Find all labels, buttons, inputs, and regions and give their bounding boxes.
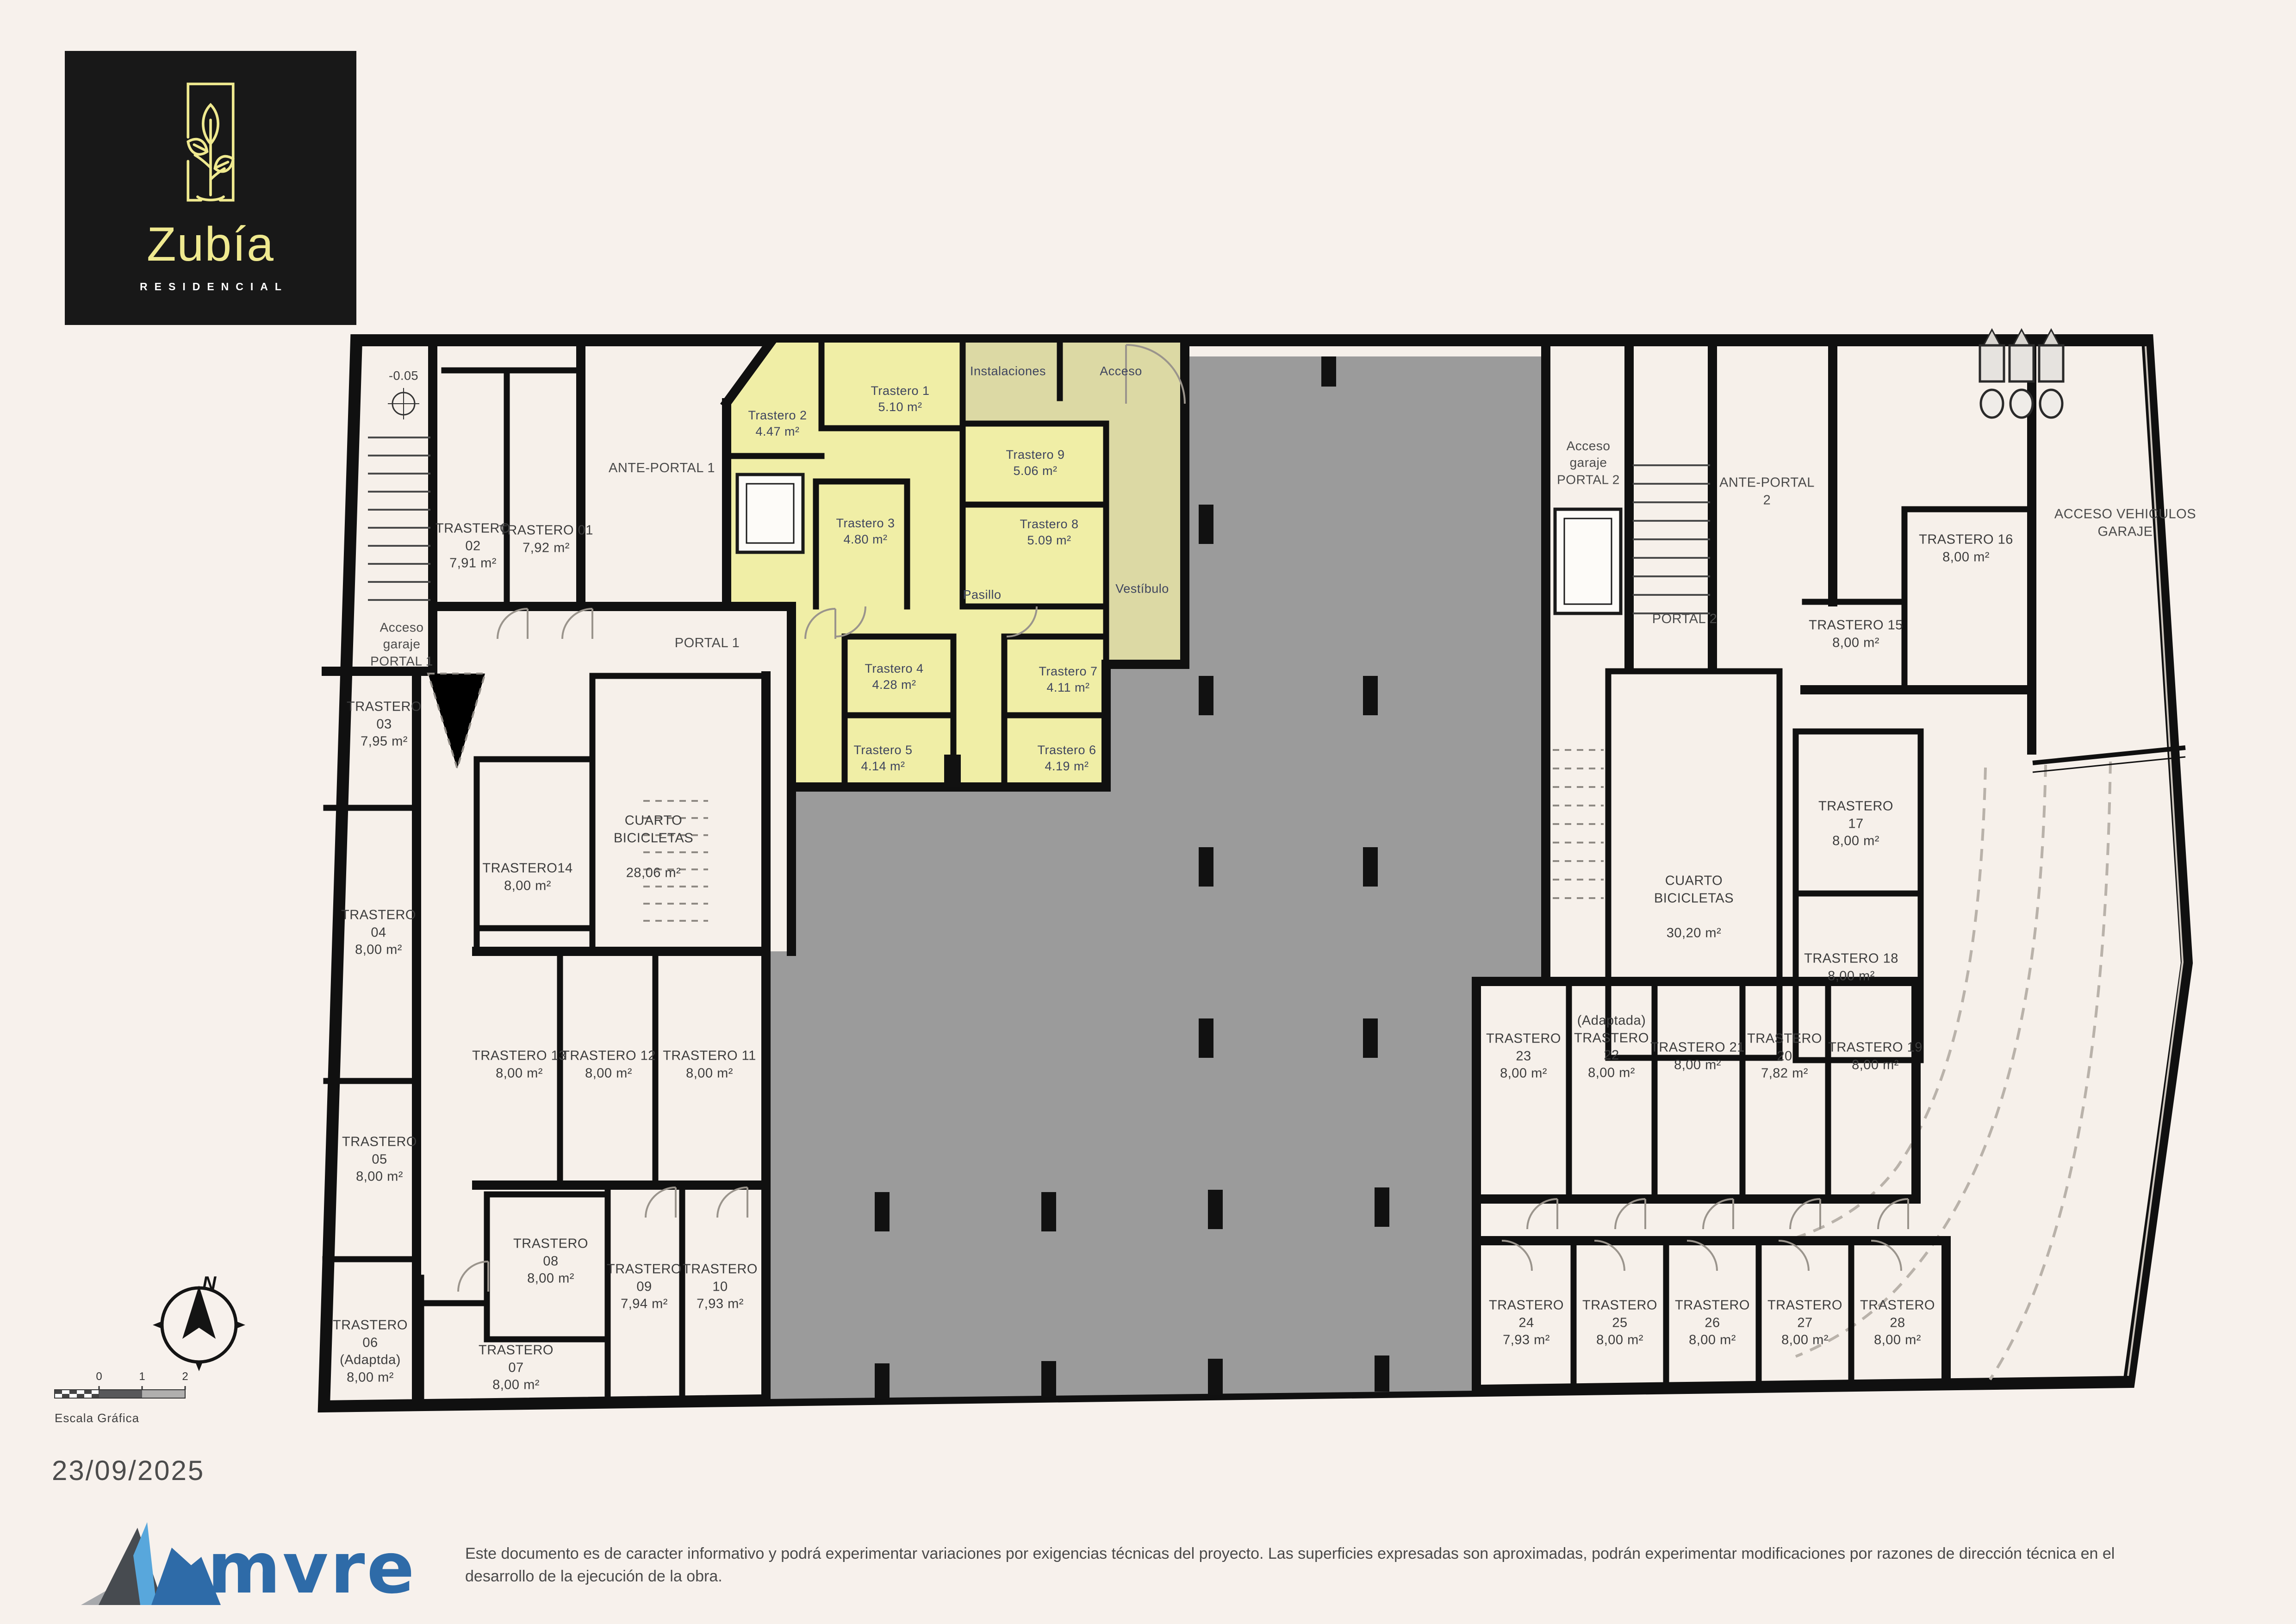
label-trastero-07: TRASTERO 07 8,00 m² xyxy=(479,1342,554,1394)
label-trastero-04: TRASTERO 04 8,00 m² xyxy=(341,906,416,959)
label-trastero-hl-5: Trastero 5 4.14 m² xyxy=(853,742,912,775)
label-trastero-10: TRASTERO 10 7,93 m² xyxy=(683,1261,758,1313)
label-pasillo: Pasillo xyxy=(963,587,1001,603)
label-trastero-25: TRASTERO 25 8,00 m² xyxy=(1582,1297,1657,1349)
label-ante-portal-2: ANTE-PORTAL 2 xyxy=(1719,474,1815,509)
scale-tick-0: 0 xyxy=(96,1370,102,1383)
label-trastero-26: TRASTERO 26 8,00 m² xyxy=(1675,1297,1750,1349)
label-trastero-hl-2: Trastero 2 4.47 m² xyxy=(748,407,807,440)
label-trastero-24: TRASTERO 24 7,93 m² xyxy=(1489,1297,1564,1349)
scale-caption: Escala Gráfica xyxy=(55,1411,139,1425)
label-trastero-01: TRASTERO 01 7,92 m² xyxy=(499,522,593,556)
label-trastero-28: TRASTERO 28 8,00 m² xyxy=(1860,1297,1935,1349)
label-acceso-vehiculos-garaje: ACCESO VEHICULOS GARAJE xyxy=(2054,506,2196,540)
label-trastero-14: TRASTERO14 8,00 m² xyxy=(482,860,572,894)
label-trastero-hl-4: Trastero 4 4.28 m² xyxy=(865,661,923,693)
label-trastero-09: TRASTERO 09 7,94 m² xyxy=(607,1261,682,1313)
label-trastero-hl-1: Trastero 1 5.10 m² xyxy=(871,383,929,415)
labels-layer: -0.05TRASTERO 02 7,91 m²TRASTERO 01 7,92… xyxy=(0,0,2296,1624)
label-trastero-12: TRASTERO 12 8,00 m² xyxy=(561,1047,656,1082)
scale-tick-2: 2 xyxy=(182,1370,188,1383)
label-level-mark: -0.05 xyxy=(389,368,418,384)
label-portal-2: PORTAL 2 xyxy=(1652,611,1717,628)
label-trastero-08: TRASTERO 08 8,00 m² xyxy=(513,1235,588,1287)
label-cuarto-bicicletas-1: CUARTO BICICLETAS 28,06 m² xyxy=(614,812,693,882)
date-label: 23/09/2025 xyxy=(52,1455,205,1487)
label-trastero-03: TRASTERO 03 7,95 m² xyxy=(347,698,422,750)
page: Zubía RESIDENCIAL -0.05TRASTERO 02 7,91 … xyxy=(0,0,2296,1624)
brand-name: mvre xyxy=(207,1533,417,1604)
label-trastero-13: TRASTERO 13 8,00 m² xyxy=(472,1047,566,1082)
label-portal-1: PORTAL 1 xyxy=(675,635,740,652)
label-acceso-garaje-portal-1: Acceso garaje PORTAL 1 xyxy=(370,619,433,669)
label-trastero-11: TRASTERO 11 8,00 m² xyxy=(663,1047,756,1082)
compass-north-label: N xyxy=(202,1272,216,1294)
label-trastero-22: (Adaptada) TRASTERO 22 8,00 m² xyxy=(1574,1012,1649,1082)
label-trastero-27: TRASTERO 27 8,00 m² xyxy=(1767,1297,1842,1349)
label-trastero-hl-3: Trastero 3 4.80 m² xyxy=(836,515,895,548)
label-cuarto-bicicletas-2: CUARTO BICICLETAS 30,20 m² xyxy=(1654,873,1734,943)
label-acceso: Acceso xyxy=(1100,363,1142,379)
label-trastero-06: TRASTERO 06 (Adaptda) 8,00 m² xyxy=(333,1317,408,1387)
label-trastero-20: TRASTERO 20 7,82 m² xyxy=(1747,1030,1822,1082)
label-trastero-23: TRASTERO 23 8,00 m² xyxy=(1486,1030,1561,1082)
label-instalaciones: Instalaciones xyxy=(970,363,1046,379)
label-trastero-hl-8: Trastero 8 5.09 m² xyxy=(1020,516,1078,549)
disclaimer-text: Este documento es de caracter informativ… xyxy=(465,1543,2187,1588)
label-trastero-hl-9: Trastero 9 5.06 m² xyxy=(1006,447,1064,479)
label-trastero-18: TRASTERO 18 8,00 m² xyxy=(1804,950,1898,985)
label-trastero-hl-7: Trastero 7 4.11 m² xyxy=(1039,663,1097,696)
label-trastero-05: TRASTERO 05 8,00 m² xyxy=(342,1133,417,1186)
scale-tick-1: 1 xyxy=(139,1370,145,1383)
label-vestibulo: Vestíbulo xyxy=(1115,581,1169,597)
label-trastero-21: TRASTERO 21 8,00 m² xyxy=(1650,1039,1745,1074)
label-trastero-15: TRASTERO 15 8,00 m² xyxy=(1809,617,1903,651)
label-ante-portal-1: ANTE-PORTAL 1 xyxy=(609,460,715,477)
label-trastero-17: TRASTERO 17 8,00 m² xyxy=(1818,798,1893,850)
label-acceso-garaje-portal-2: Acceso garaje PORTAL 2 xyxy=(1557,437,1620,488)
label-trastero-16: TRASTERO 16 8,00 m² xyxy=(1919,531,2013,566)
label-trastero-19: TRASTERO 19 8,00 m² xyxy=(1828,1039,1923,1074)
label-trastero-hl-6: Trastero 6 4.19 m² xyxy=(1037,742,1096,775)
